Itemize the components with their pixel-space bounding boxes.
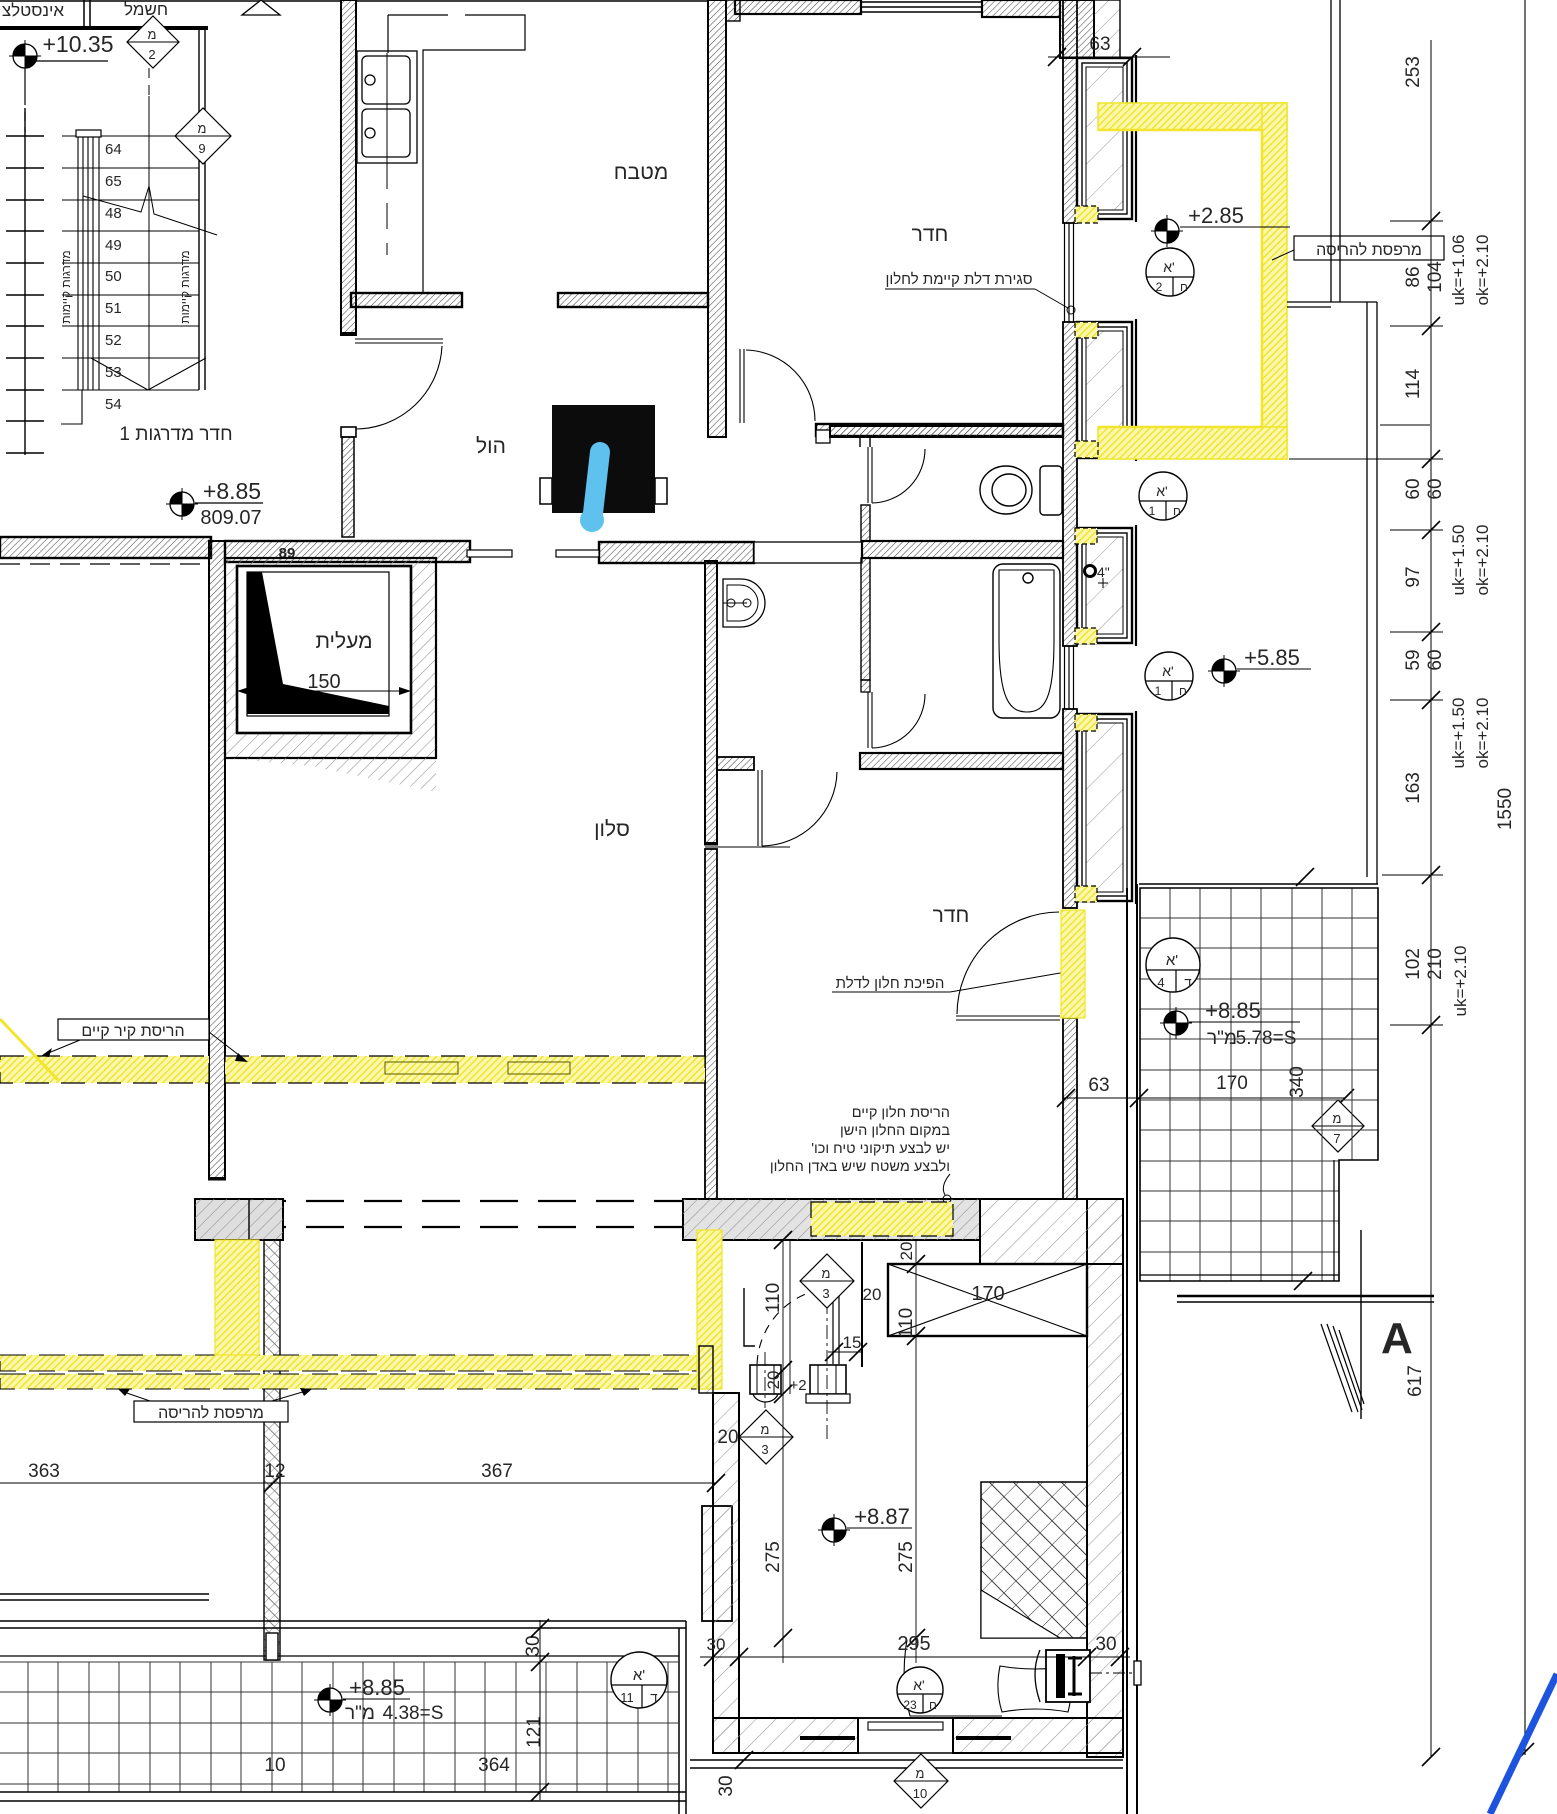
svg-text:מדרגות קיימות: מדרגות קיימות bbox=[178, 250, 192, 323]
svg-text:4.38=S: 4.38=S bbox=[383, 1703, 444, 1724]
svg-text:מ: מ bbox=[822, 1266, 831, 1281]
svg-text:מ: מ bbox=[916, 1766, 925, 1781]
svg-text:1: 1 bbox=[1155, 684, 1162, 698]
svg-text:3: 3 bbox=[822, 1286, 829, 1301]
svg-text:30: 30 bbox=[523, 1635, 544, 1656]
svg-text:275: 275 bbox=[763, 1541, 784, 1573]
svg-text:ולבצע משטח שיש באדן החלון: ולבצע משטח שיש באדן החלון bbox=[770, 1158, 950, 1175]
svg-text:48: 48 bbox=[105, 205, 122, 222]
svg-text:A: A bbox=[1381, 1314, 1413, 1363]
svg-text:9: 9 bbox=[198, 141, 205, 156]
svg-text:54: 54 bbox=[105, 396, 122, 413]
svg-text:210: 210 bbox=[1425, 948, 1446, 980]
svg-text:5.78=S: 5.78=S bbox=[1236, 1028, 1297, 1049]
svg-text:מרפסת להריסה: מרפסת להריסה bbox=[1316, 241, 1422, 259]
svg-text:20: 20 bbox=[863, 1285, 882, 1304]
svg-text:60: 60 bbox=[1425, 649, 1446, 670]
svg-text:ד: ד bbox=[650, 1690, 657, 1705]
svg-text:1550: 1550 bbox=[1495, 788, 1516, 830]
svg-text:uk=+1.06: uk=+1.06 bbox=[1449, 235, 1468, 306]
svg-text:במקום החלון הישן: במקום החלון הישן bbox=[840, 1122, 950, 1139]
svg-text:275: 275 bbox=[896, 1541, 917, 1573]
svg-text:340: 340 bbox=[1287, 1066, 1308, 1098]
svg-text:+8.87: +8.87 bbox=[854, 1504, 910, 1529]
svg-text:+2: +2 bbox=[789, 1377, 806, 1394]
svg-text:א': א' bbox=[1166, 952, 1178, 969]
svg-text:מ: מ bbox=[198, 121, 207, 136]
svg-text:121: 121 bbox=[524, 1716, 545, 1748]
svg-text:253: 253 bbox=[1403, 56, 1424, 88]
svg-text:86: 86 bbox=[1403, 266, 1424, 287]
svg-text:ח: ח bbox=[1180, 280, 1188, 294]
svg-text:uk=+1.50: uk=+1.50 bbox=[1449, 525, 1468, 596]
svg-text:סגירת דלת קיימת לחלון: סגירת דלת קיימת לחלון bbox=[885, 271, 1032, 288]
svg-text:65: 65 bbox=[105, 173, 122, 190]
svg-text:מ: מ bbox=[1333, 1111, 1342, 1126]
svg-text:59: 59 bbox=[1403, 649, 1424, 670]
svg-text:2: 2 bbox=[148, 47, 155, 62]
svg-text:א': א' bbox=[1163, 259, 1174, 275]
svg-text:11: 11 bbox=[620, 1690, 634, 1705]
svg-text:מרפסת להריסה: מרפסת להריסה bbox=[158, 1404, 264, 1422]
svg-text:uk=+1.50: uk=+1.50 bbox=[1449, 698, 1468, 769]
svg-text:30: 30 bbox=[1095, 1634, 1116, 1655]
svg-text:מ: מ bbox=[761, 1422, 770, 1437]
svg-text:12: 12 bbox=[264, 1461, 285, 1482]
svg-text:ok=+2.10: ok=+2.10 bbox=[1473, 525, 1492, 596]
svg-text:א': א' bbox=[633, 1667, 645, 1684]
svg-text:50: 50 bbox=[105, 268, 122, 285]
svg-text:חדר מדרגות 1: חדר מדרגות 1 bbox=[119, 424, 232, 445]
svg-text:63: 63 bbox=[1089, 34, 1110, 55]
svg-text:הול: הול bbox=[476, 435, 506, 458]
svg-text:23: 23 bbox=[903, 1698, 917, 1712]
svg-text:52: 52 bbox=[105, 332, 122, 349]
svg-text:1: 1 bbox=[1149, 504, 1156, 518]
svg-text:295: 295 bbox=[897, 1633, 930, 1655]
svg-text:מעלית: מעלית bbox=[315, 630, 372, 653]
svg-text:104: 104 bbox=[1425, 261, 1446, 293]
svg-text:60: 60 bbox=[1403, 478, 1424, 499]
svg-text:יש לבצע תיקוני טיח וכו': יש לבצע תיקוני טיח וכו' bbox=[811, 1140, 950, 1157]
svg-text:64: 64 bbox=[105, 141, 122, 158]
svg-text:10: 10 bbox=[264, 1755, 285, 1776]
svg-text:163: 163 bbox=[1403, 772, 1424, 804]
svg-text:30: 30 bbox=[716, 1775, 737, 1796]
svg-text:+8.85: +8.85 bbox=[203, 478, 261, 504]
svg-text:51: 51 bbox=[105, 300, 122, 317]
svg-text:+2.85: +2.85 bbox=[1188, 203, 1244, 228]
svg-text:7: 7 bbox=[1333, 1131, 1340, 1146]
svg-text:114: 114 bbox=[1403, 368, 1424, 399]
svg-text:ד: ד bbox=[1184, 975, 1191, 990]
svg-text:אינסטלצ: אינסטלצ bbox=[2, 1, 65, 20]
svg-text:הריסת חלון קיים: הריסת חלון קיים bbox=[852, 1104, 950, 1121]
svg-text:חדר: חדר bbox=[912, 223, 949, 246]
svg-text:סלון: סלון bbox=[594, 818, 630, 841]
svg-text:ח: ח bbox=[1173, 504, 1181, 518]
svg-text:uk=+2.10: uk=+2.10 bbox=[1451, 946, 1470, 1017]
svg-text:2: 2 bbox=[1156, 280, 1163, 294]
svg-text:60: 60 bbox=[1425, 478, 1446, 499]
svg-text:חדר: חדר bbox=[933, 904, 970, 927]
svg-text:110: 110 bbox=[896, 1308, 917, 1338]
svg-text:15: 15 bbox=[843, 1333, 862, 1352]
svg-text:170: 170 bbox=[1216, 1073, 1248, 1094]
svg-text:+8.85: +8.85 bbox=[349, 1675, 405, 1700]
svg-text:150: 150 bbox=[307, 671, 340, 693]
svg-text:ח: ח bbox=[1179, 684, 1187, 698]
svg-text:617: 617 bbox=[1405, 1365, 1426, 1397]
svg-text:53: 53 bbox=[105, 364, 122, 381]
svg-text:3: 3 bbox=[761, 1442, 768, 1457]
svg-text:10: 10 bbox=[913, 1786, 927, 1801]
svg-text:ok=+2.10: ok=+2.10 bbox=[1473, 235, 1492, 306]
svg-text:מ: מ bbox=[148, 27, 157, 42]
svg-text:20: 20 bbox=[717, 1427, 738, 1448]
svg-text:110: 110 bbox=[763, 1283, 784, 1313]
svg-text:367: 367 bbox=[481, 1461, 513, 1482]
svg-text:ח: ח bbox=[929, 1698, 937, 1712]
svg-text:א': א' bbox=[913, 1677, 924, 1693]
svg-text:א': א' bbox=[1156, 483, 1167, 499]
svg-text:+8.85: +8.85 bbox=[1205, 998, 1261, 1023]
svg-text:102: 102 bbox=[1403, 948, 1424, 980]
svg-text:הריסת קיר קיים: הריסת קיר קיים bbox=[81, 1023, 184, 1040]
svg-text:מ"ר: מ"ר bbox=[1207, 1028, 1237, 1049]
svg-text:20: 20 bbox=[764, 1371, 783, 1390]
svg-text:363: 363 bbox=[28, 1461, 60, 1482]
svg-text:4": 4" bbox=[1097, 564, 1110, 580]
svg-text:חשמל: חשמל bbox=[124, 0, 168, 19]
svg-text:63: 63 bbox=[1088, 1075, 1109, 1096]
svg-text:4: 4 bbox=[1157, 975, 1164, 990]
svg-text:א': א' bbox=[1162, 663, 1173, 679]
svg-text:30: 30 bbox=[707, 1635, 726, 1654]
svg-text:+10.35: +10.35 bbox=[43, 31, 114, 57]
svg-text:97: 97 bbox=[1403, 566, 1424, 587]
svg-text:170: 170 bbox=[971, 1283, 1004, 1305]
svg-text:מ"ר: מ"ר bbox=[345, 1703, 375, 1724]
svg-text:מדרגות קיימות: מדרגות קיימות bbox=[59, 250, 73, 323]
svg-text:364: 364 bbox=[478, 1755, 510, 1776]
svg-text:+5.85: +5.85 bbox=[1244, 645, 1300, 670]
svg-text:20: 20 bbox=[897, 1242, 916, 1261]
svg-text:מטבח: מטבח bbox=[614, 161, 669, 184]
svg-text:ok=+2.10: ok=+2.10 bbox=[1473, 698, 1492, 769]
svg-text:49: 49 bbox=[105, 237, 122, 254]
svg-text:הפיכת חלון לדלת: הפיכת חלון לדלת bbox=[836, 975, 945, 992]
svg-text:809.07: 809.07 bbox=[200, 507, 261, 529]
